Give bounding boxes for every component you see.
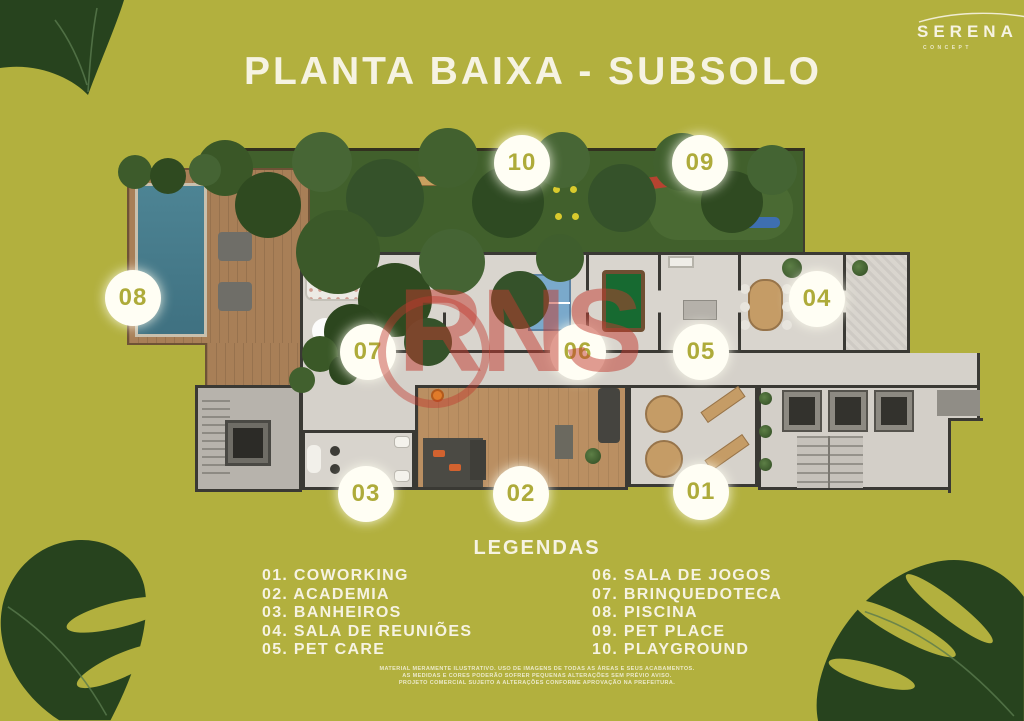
legend-item: 07. BRINQUEDOTECA [592, 586, 782, 605]
exercise-ball [431, 389, 444, 402]
area-badge-02: 02 [493, 466, 549, 522]
area-badge-05: 05 [673, 324, 729, 380]
dumbbell [433, 450, 445, 457]
legend-item: 10. PLAYGROUND [592, 641, 782, 660]
hedge [118, 155, 152, 189]
washbasin [330, 446, 340, 456]
pool-lounger [218, 282, 252, 311]
treadmill [598, 388, 620, 443]
plant [759, 458, 772, 471]
toilet [394, 436, 410, 448]
sink [307, 445, 321, 473]
area-badge-09: 09 [672, 135, 728, 191]
disclaimer-line: AS MEDIDAS E CORES PODERÃO SOFRER PEQUEN… [0, 673, 1024, 680]
disclaimer-line: MATERIAL MERAMENTE ILUSTRATIVO. USO DE I… [0, 666, 1024, 673]
chair [782, 320, 792, 330]
legend-item: 06. SALA DE JOGOS [592, 567, 782, 586]
area-badge-10: 10 [494, 135, 550, 191]
round-table [645, 395, 683, 433]
wall [738, 252, 741, 353]
floor-plan-poster: PLANTA BAIXA - SUBSOLO SERENA CONCEPT [0, 0, 1024, 721]
ramp [937, 390, 980, 416]
pet-grooming-tub [668, 256, 694, 268]
tree-canopy [419, 229, 485, 295]
dumbbell [449, 464, 461, 471]
chair [740, 320, 750, 330]
area-badge-01: 01 [673, 464, 729, 520]
pet-care-table [683, 300, 717, 320]
garden-light [570, 186, 577, 193]
area-badge-04: 04 [789, 271, 845, 327]
area-badge-03: 03 [338, 466, 394, 522]
tree-canopy [588, 164, 656, 232]
plant [852, 260, 868, 276]
stairs [797, 436, 863, 488]
gym-bench [555, 425, 573, 459]
pool-table [602, 270, 645, 332]
legend-item: 05. PET CARE [262, 641, 472, 660]
brand-logo: SERENA CONCEPT [903, 8, 1024, 60]
elevator [874, 390, 914, 432]
plant [759, 392, 772, 405]
plant [585, 448, 601, 464]
tree-canopy [536, 234, 584, 282]
chair [740, 302, 750, 312]
legend-column-right: 06. SALA DE JOGOS07. BRINQUEDOTECA08. PI… [592, 567, 782, 660]
tree-canopy [747, 145, 797, 195]
legend-item: 09. PET PLACE [592, 623, 782, 642]
legend-item: 03. BANHEIROS [262, 604, 472, 623]
meeting-table [748, 279, 783, 331]
logo-tagline: CONCEPT [923, 45, 972, 51]
area-badge-07: 07 [340, 324, 396, 380]
logo-name: SERENA [917, 22, 1018, 42]
page-title: PLANTA BAIXA - SUBSOLO [0, 50, 1024, 94]
tree-canopy [418, 128, 478, 188]
tree-canopy [491, 271, 549, 329]
legend-item: 04. SALA DE REUNIÕES [262, 623, 472, 642]
tree-canopy [235, 172, 301, 238]
washbasin [330, 464, 340, 474]
garden-light [555, 213, 562, 220]
plant [782, 258, 802, 278]
area-badge-06: 06 [550, 324, 606, 380]
elevator [828, 390, 868, 432]
legend-item: 08. PISCINA [592, 604, 782, 623]
toilet [394, 470, 410, 482]
legend-column-left: 01. COWORKING02. ACADEMIA03. BANHEIROS04… [262, 567, 472, 660]
weight-rack [470, 440, 486, 480]
garden-light [572, 213, 579, 220]
plant [759, 425, 772, 438]
hedge [150, 158, 186, 194]
round-table [645, 440, 683, 478]
legend-item: 02. ACADEMIA [262, 586, 472, 605]
plan-step-cutout [948, 418, 983, 493]
legend-title: LEGENDAS [0, 537, 1024, 560]
elevator [225, 420, 271, 466]
disclaimer-line: PROJETO COMERCIAL SUJEITO A ALTERAÇÕES C… [0, 680, 1024, 687]
tree-canopy [292, 132, 352, 192]
bush [289, 367, 315, 393]
legend-item: 01. COWORKING [262, 567, 472, 586]
chair [740, 284, 750, 294]
elevator [782, 390, 822, 432]
wall [658, 252, 661, 353]
tree-canopy [404, 318, 452, 366]
area-badge-08: 08 [105, 270, 161, 326]
disclaimer: MATERIAL MERAMENTE ILUSTRATIVO. USO DE I… [0, 666, 1024, 686]
hedge [189, 154, 221, 186]
pool-lounger [218, 232, 252, 261]
